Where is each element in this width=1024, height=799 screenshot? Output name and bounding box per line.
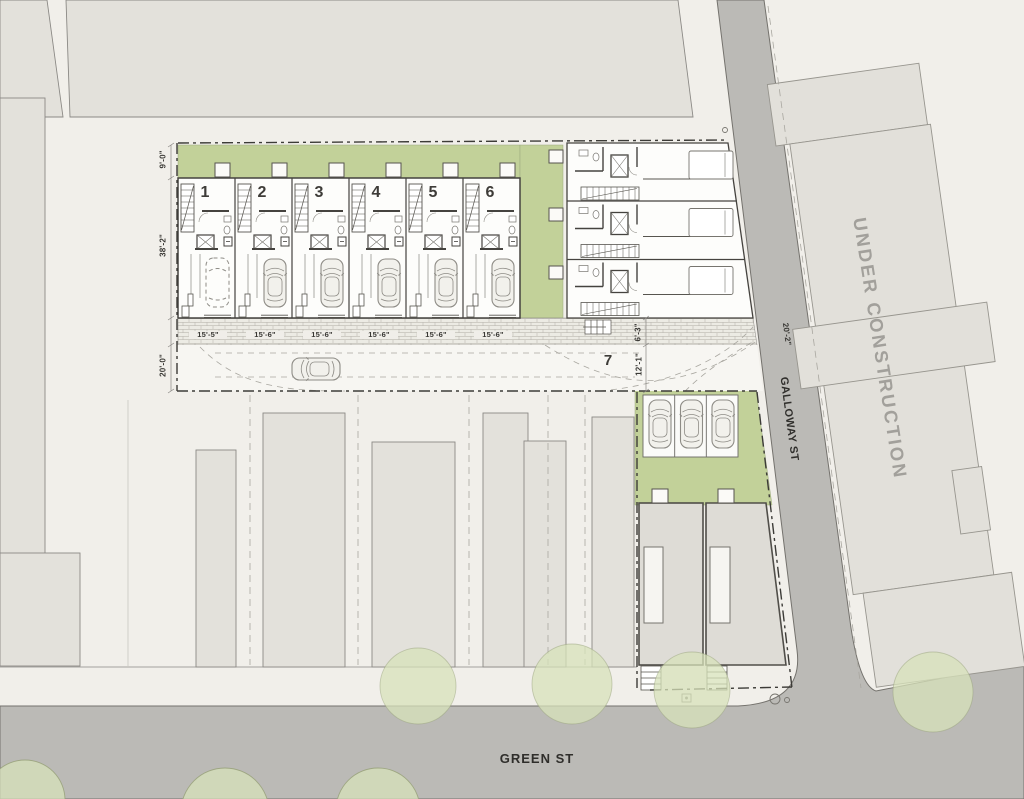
parked-car xyxy=(680,400,704,448)
dim-walk-width: 6'-3" xyxy=(635,315,644,349)
dim-unit4-width: 15'-6" xyxy=(360,331,398,339)
garage-car xyxy=(320,259,344,307)
existing-buildings-north xyxy=(0,0,693,117)
garage-car xyxy=(377,259,401,307)
site-plan: 1 2 3 4 5 6 7 15'-5" 15'-6" 15'-6" 15'-6… xyxy=(0,0,1024,799)
townhouse-row xyxy=(178,163,520,318)
garage-car xyxy=(434,259,458,307)
unit-label-3: 3 xyxy=(311,184,327,202)
site-plan-canvas xyxy=(0,0,1024,799)
dim-unit5-width: 15'-6" xyxy=(417,331,455,339)
garage-car xyxy=(491,259,515,307)
green-st-label: GREEN ST xyxy=(478,752,596,766)
flats-building xyxy=(549,143,753,334)
unit-label-1: 1 xyxy=(197,184,213,202)
dim-unit2-width: 15'-6" xyxy=(246,331,284,339)
dim-unit6-width: 15'-6" xyxy=(474,331,512,339)
unit-label-2: 2 xyxy=(254,184,270,202)
driveway xyxy=(178,345,763,391)
driveway-car xyxy=(292,357,340,381)
dim-unit3-width: 15'-6" xyxy=(303,331,341,339)
unit-label-7: 7 xyxy=(598,353,618,370)
dim-court-width: 12'-1" xyxy=(636,346,645,382)
parked-car xyxy=(711,400,735,448)
dim-driveway: 20'-0" xyxy=(160,345,169,385)
unit-label-5: 5 xyxy=(425,184,441,202)
dim-rear-yard: 9'-0" xyxy=(160,141,169,177)
dim-unit-depth: 38'-2" xyxy=(160,225,169,265)
parked-car xyxy=(648,400,672,448)
dim-unit1-width: 15'-5" xyxy=(189,331,227,339)
unit-label-4: 4 xyxy=(368,184,384,202)
garage-car xyxy=(263,259,287,307)
unit-label-6: 6 xyxy=(482,184,498,202)
